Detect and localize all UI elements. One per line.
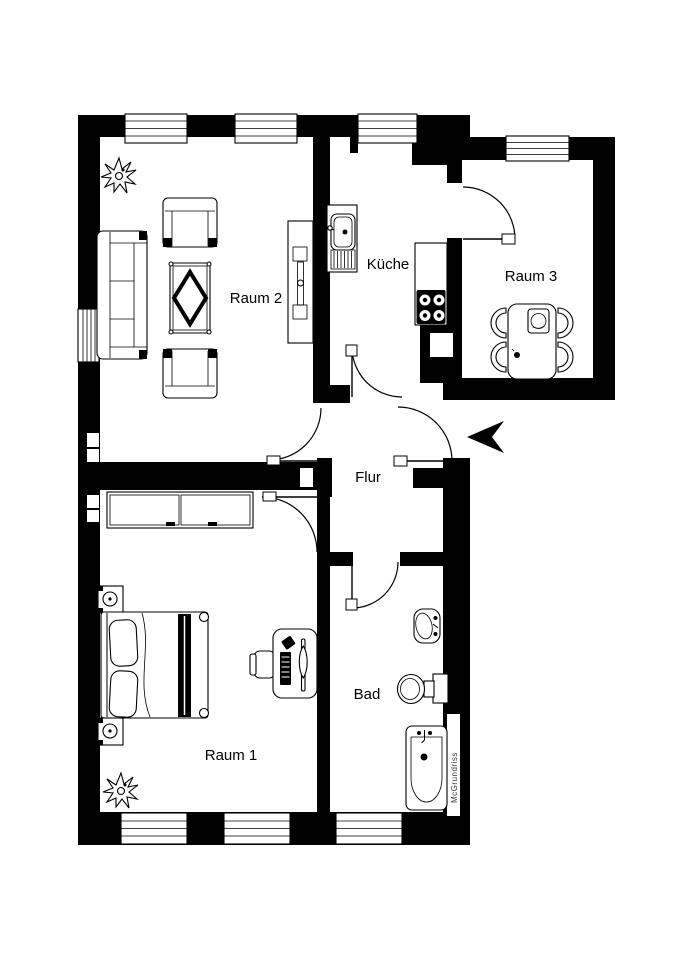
bathtub	[406, 726, 447, 810]
label-raum3: Raum 3	[505, 268, 558, 285]
armchair-bottom	[163, 349, 217, 398]
label-flur: Flur	[355, 469, 381, 486]
door-raum2	[267, 408, 330, 465]
radiator-left-wall	[78, 309, 99, 362]
entrance-arrow	[467, 421, 504, 453]
raum2-furniture	[97, 158, 313, 398]
nightstand-top	[98, 586, 123, 613]
watermark: McGrundriss	[450, 752, 459, 803]
door-entrance	[394, 407, 452, 466]
door-raum3	[463, 187, 515, 244]
plant-icon	[101, 158, 136, 193]
dining-chair	[558, 308, 573, 338]
bed	[101, 612, 209, 718]
raum3-furniture	[491, 304, 573, 379]
floor-plan-page: Raum 2 Küche Raum 3 Flur Raum 1 Bad McGr…	[0, 0, 679, 960]
stove	[415, 243, 447, 325]
window-kueche	[358, 114, 417, 143]
desk-chair	[250, 651, 275, 678]
door-kueche	[346, 345, 402, 397]
dining-chair	[558, 342, 573, 372]
toilet	[398, 674, 449, 704]
window-raum2-left	[125, 114, 187, 143]
window-raum3	[506, 136, 569, 161]
window-raum1-left	[121, 813, 187, 844]
armchair-top	[163, 198, 217, 247]
label-raum2: Raum 2	[230, 290, 283, 307]
dining-table	[508, 304, 556, 379]
sofa	[97, 231, 147, 359]
label-bad: Bad	[354, 686, 381, 703]
window-raum2-right	[235, 114, 297, 143]
desk	[273, 629, 317, 698]
wall-niches	[87, 333, 460, 816]
dining-chair	[491, 308, 506, 338]
nightstand-bottom	[98, 718, 123, 745]
plant-icon	[103, 773, 138, 808]
floor-plan: Raum 2 Küche Raum 3 Flur Raum 1 Bad McGr…	[0, 0, 679, 960]
label-kueche: Küche	[367, 256, 410, 273]
door-bad	[346, 562, 398, 610]
coffee-table	[169, 262, 211, 334]
dining-chair	[491, 342, 506, 372]
wardrobe	[107, 492, 253, 528]
bad-furniture	[398, 609, 449, 810]
window-raum1-right	[224, 813, 290, 844]
cabinet	[288, 221, 313, 343]
label-raum1: Raum 1	[205, 747, 258, 764]
bathroom-sink	[413, 609, 440, 643]
window-bad	[336, 813, 402, 844]
kitchen-sink	[327, 205, 357, 272]
door-raum1	[262, 492, 317, 552]
